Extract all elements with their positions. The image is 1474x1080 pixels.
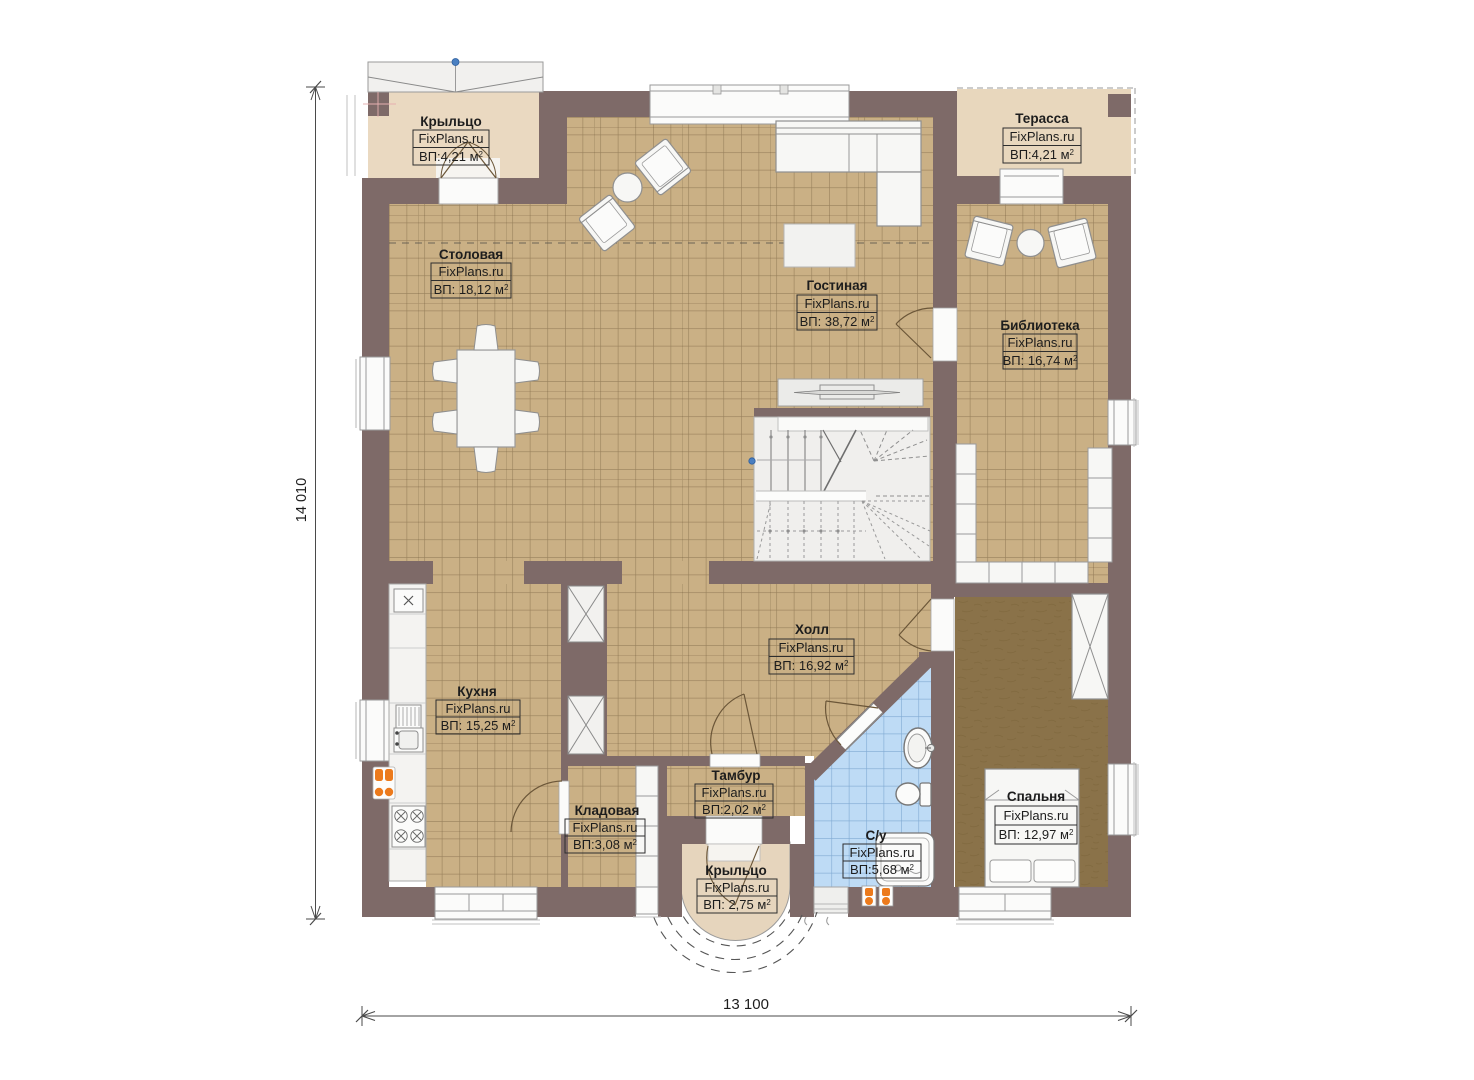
svg-text:ВП:3,08 м2: ВП:3,08 м2 bbox=[573, 837, 637, 852]
svg-text:ВП:5,68 м2: ВП:5,68 м2 bbox=[850, 862, 914, 877]
svg-text:FixPlans.ru: FixPlans.ru bbox=[1009, 129, 1074, 144]
svg-text:FixPlans.ru: FixPlans.ru bbox=[849, 845, 914, 860]
svg-text:ВП: 15,25 м2: ВП: 15,25 м2 bbox=[441, 718, 516, 733]
svg-text:Крыльцо: Крыльцо bbox=[420, 114, 481, 129]
svg-text:FixPlans.ru: FixPlans.ru bbox=[778, 640, 843, 655]
svg-text:Столовая: Столовая bbox=[439, 247, 503, 262]
svg-text:14 010: 14 010 bbox=[294, 478, 310, 522]
svg-text:ВП: 16,92 м2: ВП: 16,92 м2 bbox=[774, 658, 849, 673]
svg-text:С/у: С/у bbox=[865, 828, 887, 843]
svg-text:ВП: 12,97 м2: ВП: 12,97 м2 bbox=[999, 827, 1074, 842]
svg-text:ВП: 18,12 м2: ВП: 18,12 м2 bbox=[434, 282, 509, 297]
svg-text:FixPlans.ru: FixPlans.ru bbox=[438, 264, 503, 279]
svg-text:ВП:2,02 м2: ВП:2,02 м2 bbox=[702, 802, 766, 817]
svg-text:FixPlans.ru: FixPlans.ru bbox=[445, 701, 510, 716]
svg-text:Крыльцо: Крыльцо bbox=[705, 863, 766, 878]
svg-text:ВП:4,21 м2: ВП:4,21 м2 bbox=[419, 149, 483, 164]
svg-text:ВП: 38,72 м2: ВП: 38,72 м2 bbox=[800, 314, 875, 329]
svg-text:FixPlans.ru: FixPlans.ru bbox=[572, 820, 637, 835]
svg-text:Библиотека: Библиотека bbox=[1000, 318, 1080, 333]
svg-text:ВП: 2,75 м2: ВП: 2,75 м2 bbox=[703, 897, 771, 912]
svg-text:Кладовая: Кладовая bbox=[575, 803, 640, 818]
svg-text:FixPlans.ru: FixPlans.ru bbox=[418, 131, 483, 146]
svg-text:FixPlans.ru: FixPlans.ru bbox=[1007, 335, 1072, 350]
svg-text:ВП:4,21 м2: ВП:4,21 м2 bbox=[1010, 147, 1074, 162]
svg-text:ВП: 16,74 м2: ВП: 16,74 м2 bbox=[1003, 353, 1078, 368]
svg-text:Кухня: Кухня bbox=[457, 684, 496, 699]
svg-text:FixPlans.ru: FixPlans.ru bbox=[701, 785, 766, 800]
svg-text:FixPlans.ru: FixPlans.ru bbox=[1003, 808, 1068, 823]
svg-text:Холл: Холл bbox=[795, 622, 829, 637]
svg-text:Тамбур: Тамбур bbox=[712, 768, 761, 783]
svg-text:FixPlans.ru: FixPlans.ru bbox=[804, 296, 869, 311]
svg-text:Спальня: Спальня bbox=[1007, 789, 1065, 804]
svg-text:Терасса: Терасса bbox=[1015, 111, 1069, 126]
svg-text:FixPlans.ru: FixPlans.ru bbox=[704, 880, 769, 895]
svg-text:Гостиная: Гостиная bbox=[806, 278, 867, 293]
svg-text:13 100: 13 100 bbox=[723, 996, 769, 1013]
